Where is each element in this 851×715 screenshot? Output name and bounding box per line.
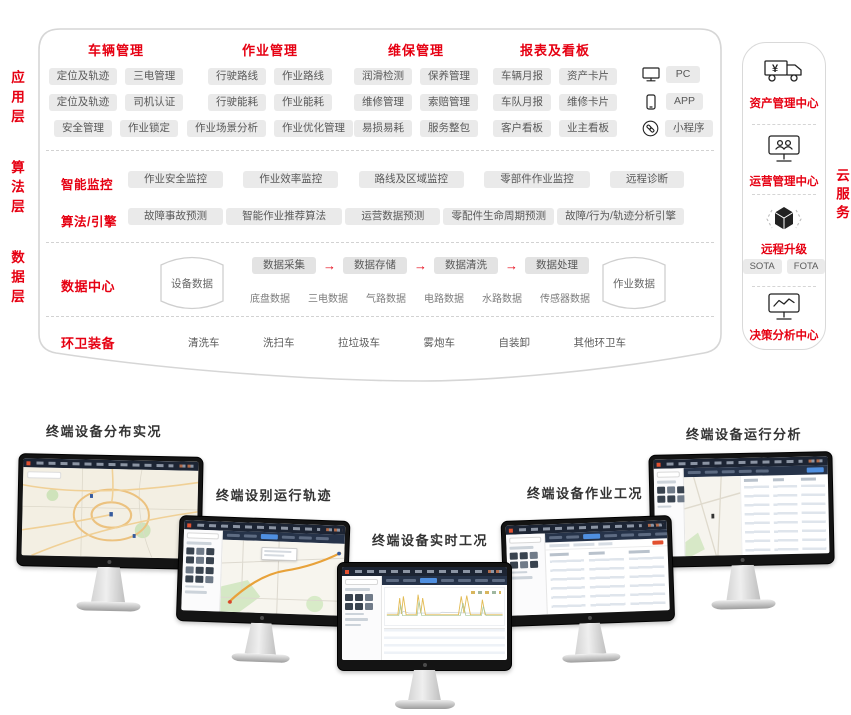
monitor2-label: 终端设别运行轨迹 <box>216 485 332 504</box>
power-led <box>107 560 111 564</box>
store-label: 作业数据 <box>602 254 666 312</box>
monitor-chart-icon <box>766 293 802 323</box>
platform-label: APP <box>666 93 703 110</box>
arrow-right: → <box>505 257 518 274</box>
power-led <box>423 663 427 667</box>
algo-pill: 作业安全监控 <box>128 171 223 188</box>
feature-pill: 索赔管理 <box>420 94 478 111</box>
svg-text:¥: ¥ <box>772 63 779 75</box>
smart-monitoring-label: 智能监控 <box>61 174 113 193</box>
feature-pill: 作业优化管理 <box>274 120 353 137</box>
platforms-column: PC APP 小程序 <box>642 66 713 137</box>
platform-miniprogram: 小程序 <box>642 120 713 137</box>
app-logo <box>26 461 30 465</box>
group-report-dashboard: 报表及看板 车辆月报 资产卡片 车队月报 维修卡片 客户看板 业主看板 <box>492 40 618 137</box>
group-title: 作业管理 <box>242 40 298 59</box>
algo-engine-row: 故障事故预测 智能作业推荐算法 运营数据预测 零配件生命周期预测 故障/行为/轨… <box>128 208 684 225</box>
app-logo <box>187 523 191 527</box>
device-sidebar <box>342 576 382 660</box>
data-sources-row: 底盘数据 三电数据 气路数据 电路数据 水路数据 传感器数据 <box>250 290 590 305</box>
monitor-running-track <box>175 515 351 665</box>
group-operation-mgmt: 作业管理 行驶路线 作业路线 行驶能耗 作业能耗 作业场景分析 作业优化管理 <box>195 40 345 137</box>
user-area <box>648 524 664 527</box>
algo-pill: 故障事故预测 <box>128 208 223 225</box>
route-map-view <box>220 540 345 616</box>
algo-pill: 作业效率监控 <box>243 171 338 188</box>
monitor-stand-neck <box>237 622 284 655</box>
user-area <box>488 570 504 573</box>
feature-pill: 作业场景分析 <box>187 120 266 137</box>
pipeline-step: 数据处理 <box>525 257 589 274</box>
divider-data-equip <box>46 316 714 317</box>
monitor-stand-base <box>395 700 455 709</box>
user-area <box>809 460 825 463</box>
data-source: 底盘数据 <box>250 290 290 305</box>
feature-pill: 易损易耗 <box>354 120 412 137</box>
feature-pill: 服务整包 <box>420 120 478 137</box>
app-logo <box>657 462 661 466</box>
cloud-services-panel: ¥ 资产管理中心 运营管理中心 远程升级 SOTA FOTA 决策分析中心 <box>742 42 826 350</box>
power-led <box>587 616 591 620</box>
city-map-view <box>22 467 199 559</box>
data-source: 传感器数据 <box>540 290 590 305</box>
nav-menu <box>667 460 803 465</box>
group-title: 车辆管理 <box>88 40 144 59</box>
feature-pill: 业主看板 <box>559 120 617 137</box>
power-led <box>259 616 263 620</box>
monitor-stand-base <box>562 653 620 663</box>
cube-icon <box>764 202 804 236</box>
readings-table <box>384 628 505 658</box>
algo-pill: 故障/行为/轨迹分析引擎 <box>557 208 684 225</box>
algo-pill: 智能作业推荐算法 <box>226 208 342 225</box>
arrow-right: → <box>323 257 336 274</box>
layer-label-application: 应用层 <box>6 70 26 129</box>
feature-pill: 资产卡片 <box>559 68 617 85</box>
pc-icon <box>642 67 660 82</box>
divider-algo-data <box>46 242 714 243</box>
feature-pill: 三电管理 <box>125 68 183 85</box>
smart-monitoring-row: 作业安全监控 作业效率监控 路线及区域监控 零部件作业监控 远程诊断 <box>128 171 684 188</box>
analysis-map-view <box>683 476 742 556</box>
equipment-items: 清洗车 洗扫车 拉垃圾车 雾炮车 自装卸 其他环卫车 <box>188 335 626 350</box>
user-area <box>179 465 195 468</box>
architecture-panel: 车辆管理 定位及轨迹 三电管理 定位及轨迹 司机认证 安全管理 作业锁定 作业管… <box>38 28 722 396</box>
sota-pill: SOTA <box>743 259 782 274</box>
map-search-box <box>27 471 61 479</box>
cloud-divider <box>752 124 816 125</box>
device-sidebar <box>181 529 222 611</box>
sidebar-search <box>345 579 378 585</box>
monitor-stand-neck <box>718 564 769 600</box>
feature-pill: 作业路线 <box>274 68 332 85</box>
chart-legend <box>471 591 501 594</box>
feature-pill: 行驶能耗 <box>208 94 266 111</box>
monitor-running-analysis <box>648 451 835 611</box>
arrow-right: → <box>414 257 427 274</box>
nav-menu <box>36 462 173 467</box>
equipment-item: 雾炮车 <box>424 335 456 350</box>
nav-menu <box>355 570 482 573</box>
data-pipeline: 数据采集 → 数据存储 → 数据清洗 → 数据处理 <box>252 257 589 274</box>
cloud-divider <box>752 194 816 195</box>
feature-pill: 行驶路线 <box>208 68 266 85</box>
feature-pill: 维修卡片 <box>559 94 617 111</box>
filter-button <box>652 540 663 544</box>
monitor-stand-neck <box>83 566 134 602</box>
group-title: 报表及看板 <box>520 40 590 59</box>
analysis-data-panel <box>741 474 829 555</box>
divider-app-algo <box>46 150 714 151</box>
sidebar-search <box>187 532 219 539</box>
monitor-stand-neck <box>567 622 614 655</box>
cloud-divider <box>752 286 816 287</box>
decision-center-label: 决策分析中心 <box>743 327 825 343</box>
user-area <box>326 528 342 531</box>
monitor-device-distribution <box>15 453 203 613</box>
store-label: 设备数据 <box>160 254 224 312</box>
monitor3-label: 终端设备实时工况 <box>372 530 488 549</box>
platform-label: 小程序 <box>665 120 713 137</box>
device-sidebar <box>506 533 547 615</box>
data-source: 三电数据 <box>308 290 348 305</box>
layer-label-algorithm: 算法层 <box>6 160 26 219</box>
operation-center-label: 运营管理中心 <box>743 173 825 189</box>
feature-pill: 安全管理 <box>54 120 112 137</box>
layer-label-data: 数据层 <box>6 250 26 309</box>
group-vehicle-mgmt: 车辆管理 定位及轨迹 三电管理 定位及轨迹 司机认证 安全管理 作业锁定 <box>49 40 183 137</box>
tabs-toolbar <box>382 576 507 585</box>
feature-pill: 车辆月报 <box>493 68 551 85</box>
feature-pill: 润滑检测 <box>354 68 412 85</box>
truck-yen-icon: ¥ <box>763 57 805 85</box>
remote-upgrade-label: 远程升级 <box>743 241 825 257</box>
equipment-item: 洗扫车 <box>263 335 295 350</box>
monitor5-label: 终端设备运行分析 <box>686 424 802 443</box>
monitor-users-icon <box>766 135 802 165</box>
data-source: 水路数据 <box>482 290 522 305</box>
pipeline-step: 数据采集 <box>252 257 316 274</box>
equipment-label: 环卫装备 <box>61 333 115 352</box>
pipeline-step: 数据存储 <box>343 257 407 274</box>
feature-pill: 客户看板 <box>493 120 551 137</box>
algo-pill: 路线及区域监控 <box>359 171 465 188</box>
group-maintenance-mgmt: 维保管理 润滑检测 保养管理 维修管理 索赔管理 易损易耗 服务整包 <box>351 40 481 137</box>
monitor-working-condition <box>501 515 677 665</box>
fota-pill: FOTA <box>787 259 826 274</box>
monitor-stand-base <box>231 653 289 663</box>
monitor-realtime-condition <box>337 562 512 709</box>
monitor-stand-base <box>76 601 140 611</box>
algo-pill: 运营数据预测 <box>345 208 440 225</box>
monitor1-label: 终端设备分布实况 <box>46 421 162 440</box>
cloud-services-side-label: 云服务 <box>831 168 851 224</box>
feature-pill: 作业能耗 <box>274 94 332 111</box>
map-info-popup <box>261 547 298 561</box>
power-led <box>741 558 745 562</box>
data-source: 气路数据 <box>366 290 406 305</box>
feature-pill: 车队月报 <box>493 94 551 111</box>
algo-pill: 零部件作业监控 <box>484 171 590 188</box>
monitor4-label: 终端设备作业工况 <box>527 483 643 502</box>
data-center-label: 数据中心 <box>61 276 115 295</box>
sidebar-search <box>509 537 541 544</box>
job-data-store: 作业数据 <box>602 254 666 312</box>
platform-app: APP <box>642 93 713 110</box>
app-logo <box>509 528 513 532</box>
realtime-line-chart <box>384 587 505 626</box>
monitor-stand-base <box>711 599 775 609</box>
link-icon <box>642 120 659 137</box>
feature-pill: 作业锁定 <box>120 120 178 137</box>
sidebar-search <box>657 471 680 477</box>
app-logo <box>345 570 349 574</box>
screen-header <box>342 567 507 576</box>
smartphone-icon <box>642 94 660 110</box>
equipment-item: 拉垃圾车 <box>338 335 380 350</box>
algo-engine-label: 算法/引擎 <box>61 211 117 230</box>
feature-pill: 定位及轨迹 <box>49 94 118 111</box>
device-data-store: 设备数据 <box>160 254 224 312</box>
platform-label: PC <box>666 66 700 83</box>
group-title: 维保管理 <box>388 40 444 59</box>
upgrade-pills: SOTA FOTA <box>743 259 825 274</box>
asset-center-label: 资产管理中心 <box>743 95 825 111</box>
data-source: 电路数据 <box>424 290 464 305</box>
equipment-item: 自装卸 <box>499 335 531 350</box>
equipment-item: 其他环卫车 <box>574 335 627 350</box>
feature-pill: 保养管理 <box>420 68 478 85</box>
equipment-item: 清洗车 <box>188 335 220 350</box>
data-columns <box>545 546 670 614</box>
platform-pc: PC <box>642 66 713 83</box>
feature-pill: 维修管理 <box>354 94 412 111</box>
feature-pill: 司机认证 <box>125 94 183 111</box>
pipeline-step: 数据清洗 <box>434 257 498 274</box>
algo-pill: 远程诊断 <box>610 171 684 188</box>
algo-pill: 零配件生命周期预测 <box>443 208 554 225</box>
feature-pill: 定位及轨迹 <box>49 68 118 85</box>
monitor-stand-neck <box>401 670 449 700</box>
